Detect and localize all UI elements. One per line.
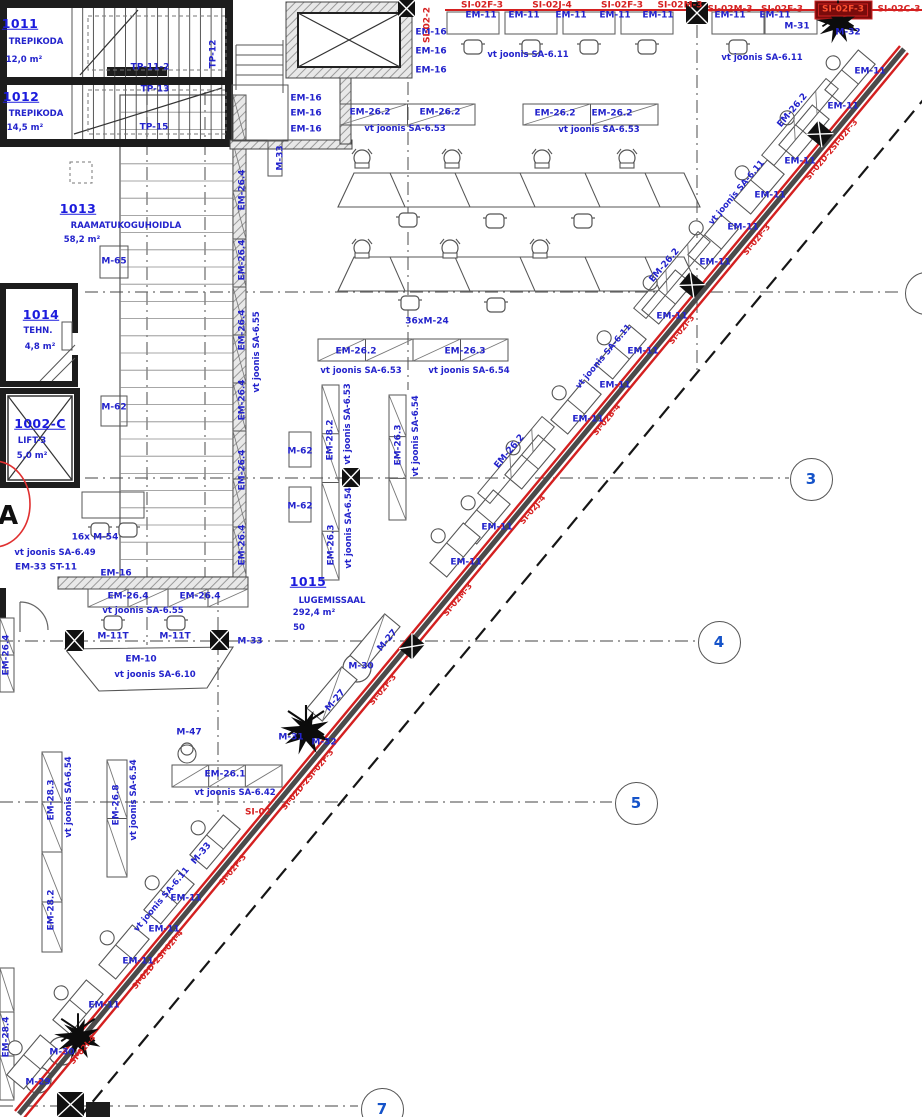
- shelving-1013: [120, 95, 246, 577]
- floor-plan-page: 1011TREPIKODA12,0 m²1012TREPIKODA14,5 m²…: [0, 0, 922, 1117]
- floor-plan-drawing: [0, 0, 922, 1117]
